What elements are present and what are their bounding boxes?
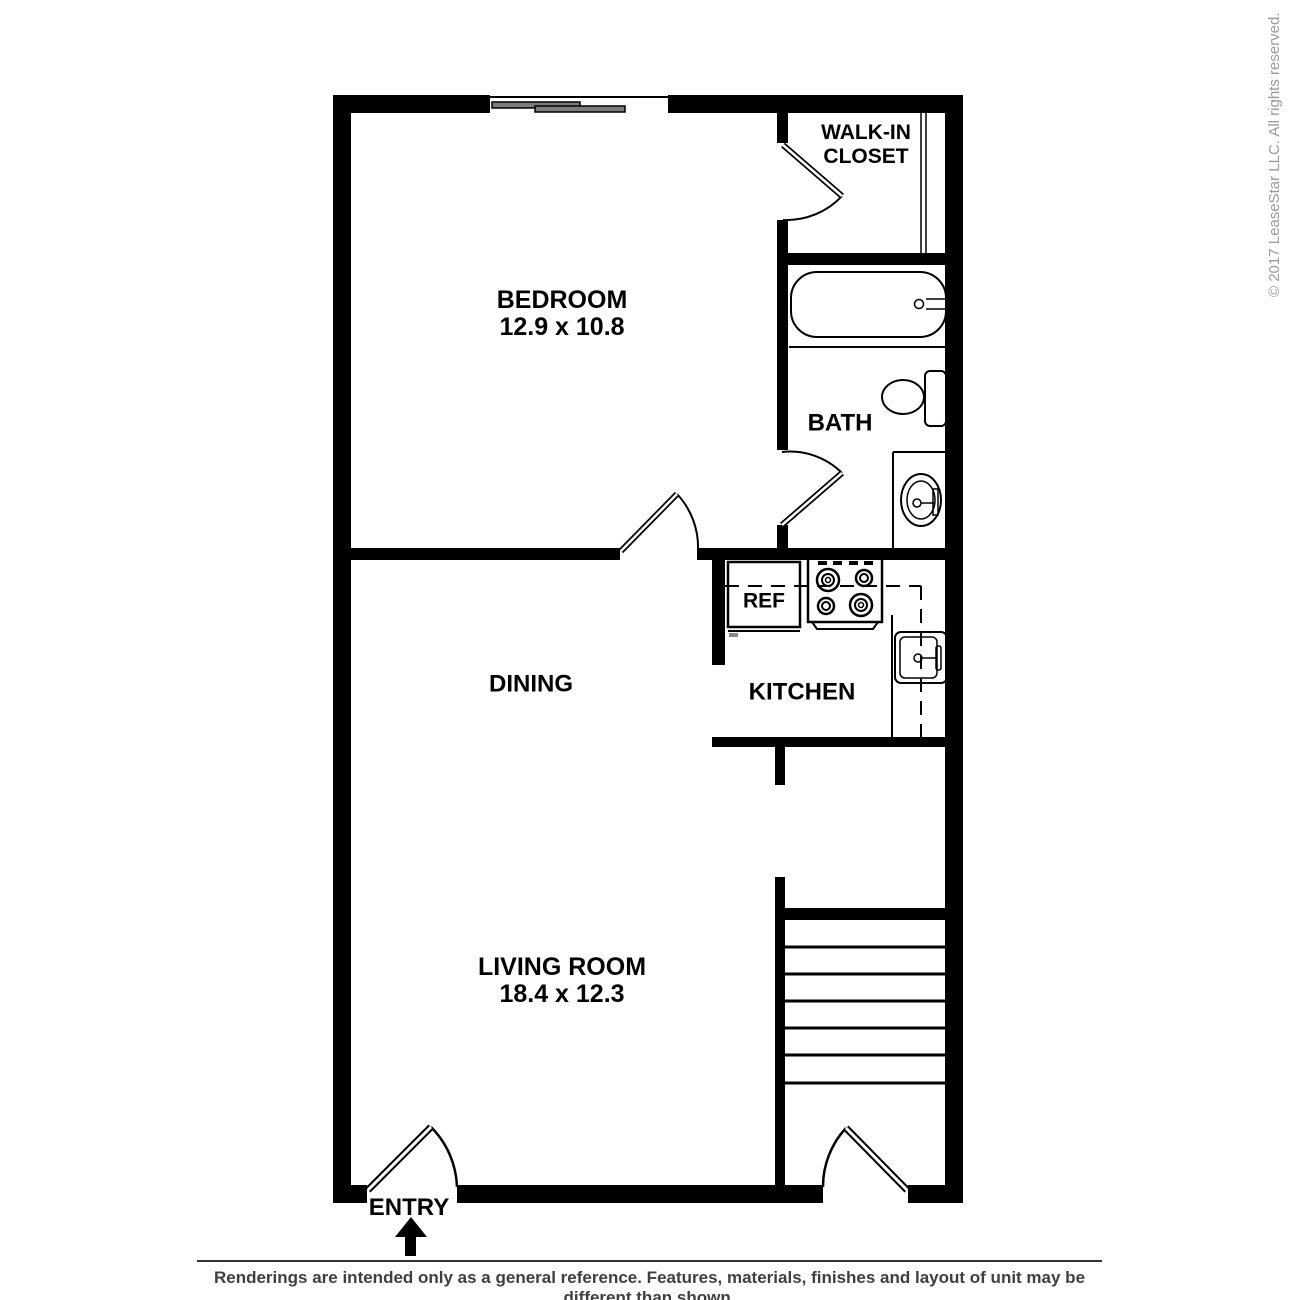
living-room-name: LIVING ROOM <box>478 954 646 981</box>
walk-in-closet-label: WALK-IN CLOSET <box>821 121 911 169</box>
bedroom-dimensions: 12.9 x 10.8 <box>497 314 628 341</box>
floor-plan: BEDROOM 12.9 x 10.8 WALK-IN CLOSET BATH … <box>0 0 1300 1300</box>
bathtub-icon <box>789 272 946 347</box>
closet-rod <box>921 113 926 253</box>
stairs <box>785 947 945 1083</box>
fixtures-layer <box>0 0 1300 1300</box>
bathroom-sink-icon <box>893 452 945 548</box>
disclaimer-text: Renderings are intended only as a genera… <box>197 1268 1102 1300</box>
entry-arrow-icon <box>395 1217 427 1237</box>
dining-label: DINING <box>489 672 573 697</box>
bath-label: BATH <box>808 411 873 436</box>
entry-door <box>368 1127 457 1190</box>
bedroom-label: BEDROOM 12.9 x 10.8 <box>497 287 628 341</box>
stove-icon <box>808 558 882 629</box>
bedroom-window <box>490 97 668 112</box>
bedroom-door <box>621 494 698 551</box>
toilet-icon <box>882 371 946 426</box>
bath-door <box>782 452 842 525</box>
entry-arrow-shaft <box>405 1236 416 1256</box>
back-door <box>823 1128 907 1190</box>
closet-name-line2: CLOSET <box>821 145 911 169</box>
footer-divider <box>197 1260 1102 1262</box>
closet-name-line1: WALK-IN <box>821 121 911 145</box>
bedroom-name: BEDROOM <box>497 287 628 314</box>
copyright-watermark: © 2017 LeaseStar LLC. All rights reserve… <box>1266 12 1283 297</box>
kitchen-label: KITCHEN <box>749 680 856 705</box>
living-room-label: LIVING ROOM 18.4 x 12.3 <box>478 954 646 1008</box>
refrigerator-label: REF <box>743 591 785 612</box>
living-room-dimensions: 18.4 x 12.3 <box>478 981 646 1008</box>
